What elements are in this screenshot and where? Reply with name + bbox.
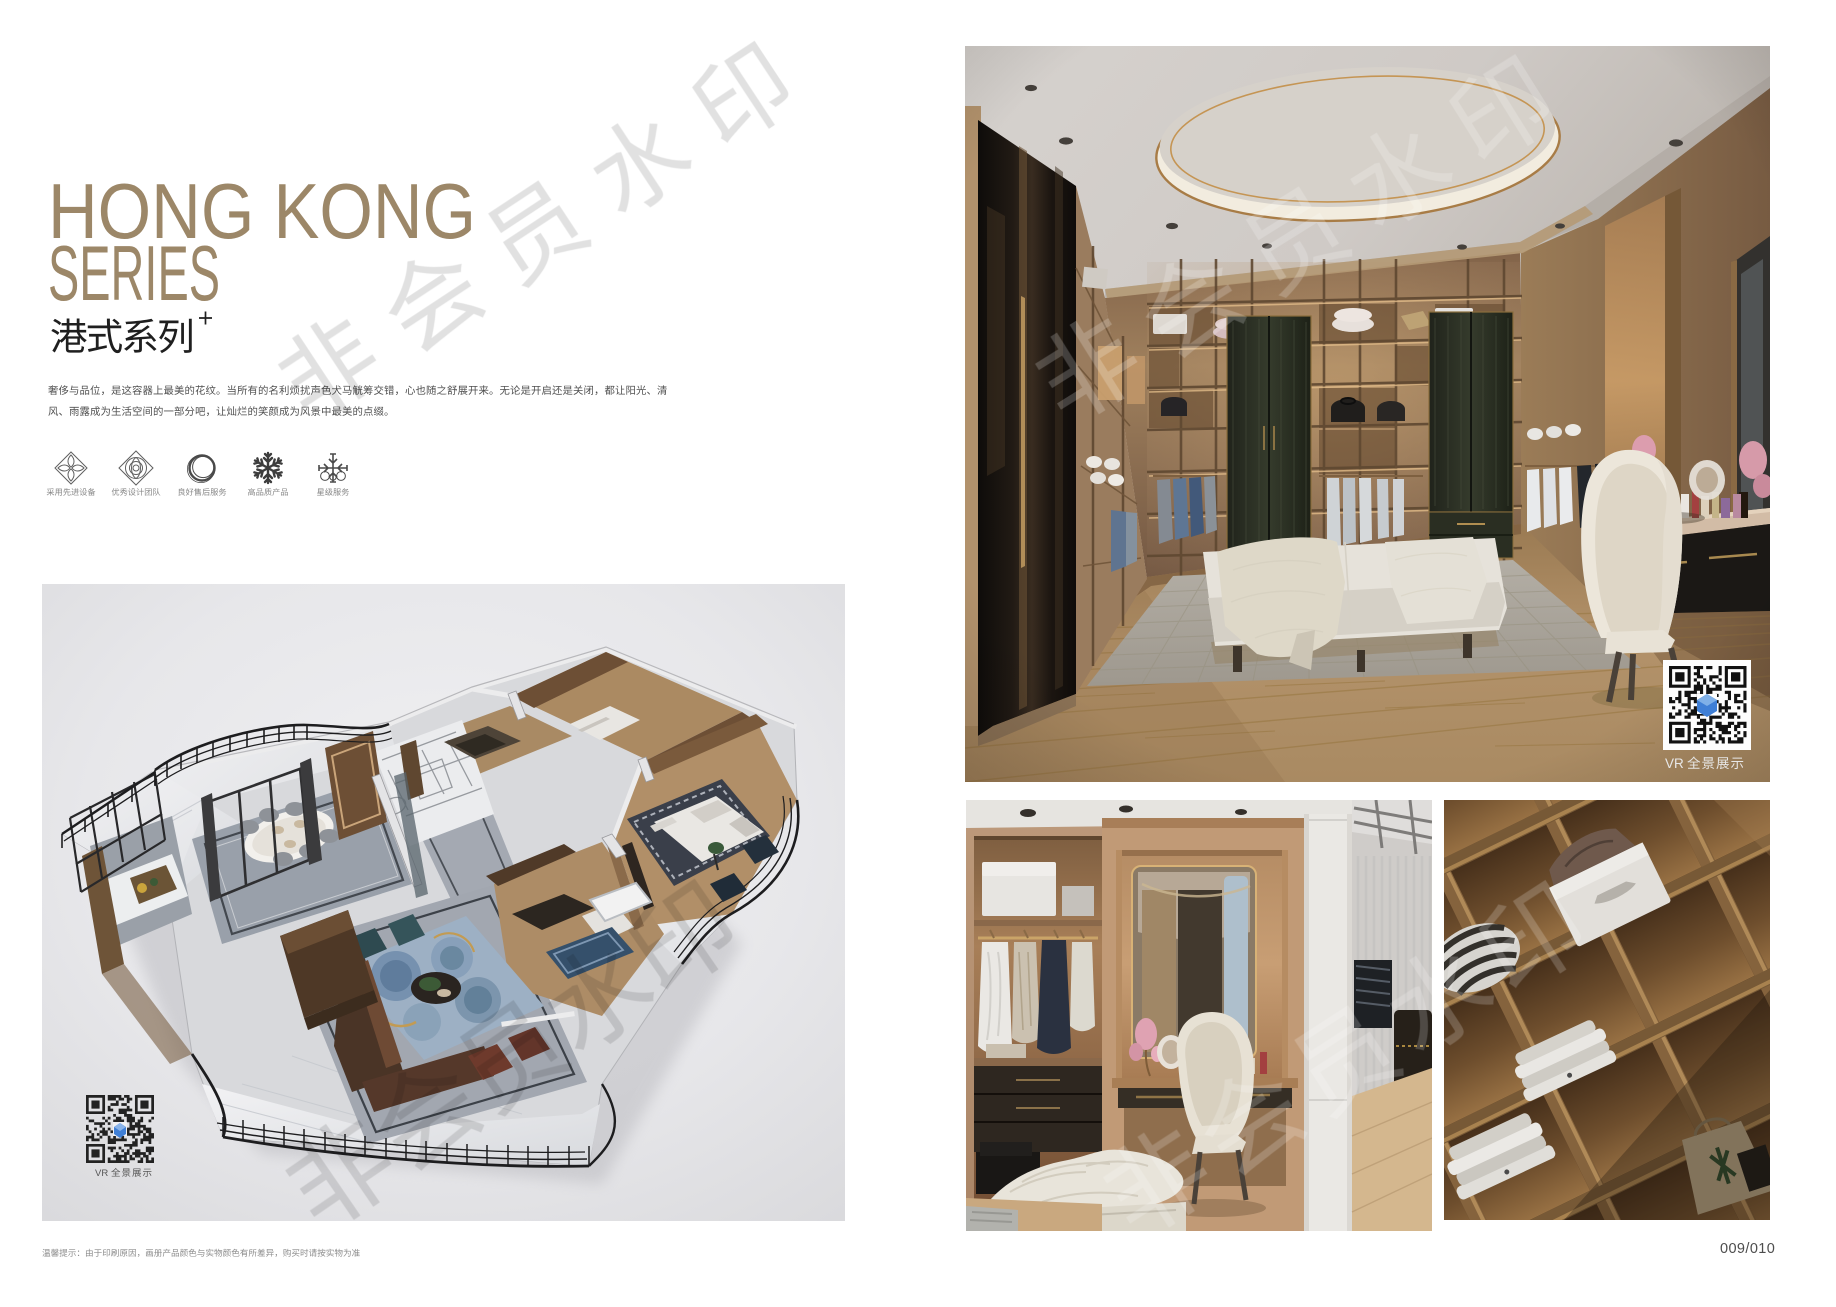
svg-text:VR: VR: [95, 1168, 108, 1179]
svg-text:SERIES: SERIES: [48, 229, 220, 317]
svg-text:VR: VR: [1665, 756, 1684, 771]
